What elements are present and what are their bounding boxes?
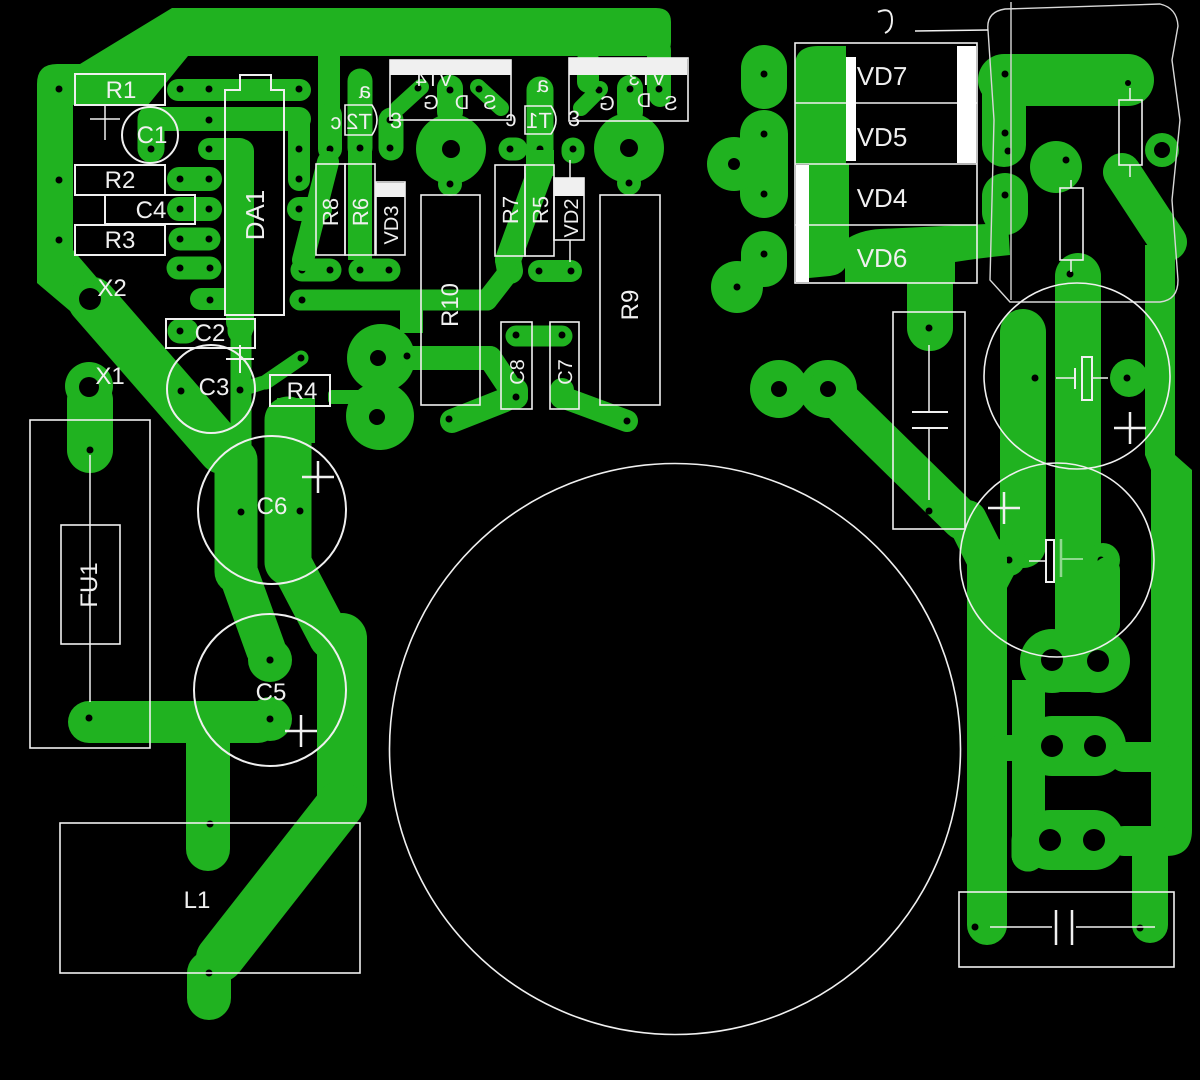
svg-text:C3: C3 [199,374,230,401]
svg-text:a: a [358,78,371,103]
svg-text:G: G [599,93,615,115]
svg-text:R5: R5 [528,196,553,224]
svg-text:C6: C6 [257,493,288,520]
svg-text:T1: T1 [526,108,552,133]
svg-text:c: c [330,109,341,134]
svg-text:VD4: VD4 [857,183,908,213]
svg-text:VD3: VD3 [381,206,403,245]
svg-text:L1: L1 [184,887,211,914]
svg-text:G: G [423,92,439,114]
svg-text:a: a [536,72,549,97]
svg-text:VT4: VT4 [416,69,453,91]
svg-text:S: S [483,92,496,114]
svg-text:R2: R2 [105,167,136,194]
svg-text:VT3: VT3 [629,68,666,90]
svg-text:R1: R1 [106,77,137,104]
svg-text:R4: R4 [287,378,318,405]
svg-text:C8: C8 [507,359,529,385]
svg-text:VD2: VD2 [561,199,583,238]
svg-text:R8: R8 [318,198,343,226]
svg-text:c: c [505,106,516,131]
svg-text:C1: C1 [137,122,168,149]
svg-text:D: D [455,92,469,114]
svg-text:R10: R10 [437,283,464,327]
svg-text:VD5: VD5 [857,122,908,152]
svg-text:R9: R9 [617,290,644,321]
svg-text:T2: T2 [346,109,372,134]
svg-text:VD7: VD7 [857,61,908,91]
svg-text:C5: C5 [256,679,287,706]
svg-text:R7: R7 [498,196,523,224]
svg-text:C7: C7 [555,359,577,385]
svg-text:R6: R6 [348,198,373,226]
svg-text:X1: X1 [95,363,124,390]
svg-text:S: S [664,93,677,115]
svg-text:R3: R3 [105,227,136,254]
svg-text:D: D [637,90,651,112]
svg-text:VD6: VD6 [857,243,908,273]
svg-text:C2: C2 [195,320,226,347]
svg-text:X2: X2 [97,275,126,302]
svg-text:DA1: DA1 [240,190,270,241]
svg-text:C4: C4 [136,197,167,224]
